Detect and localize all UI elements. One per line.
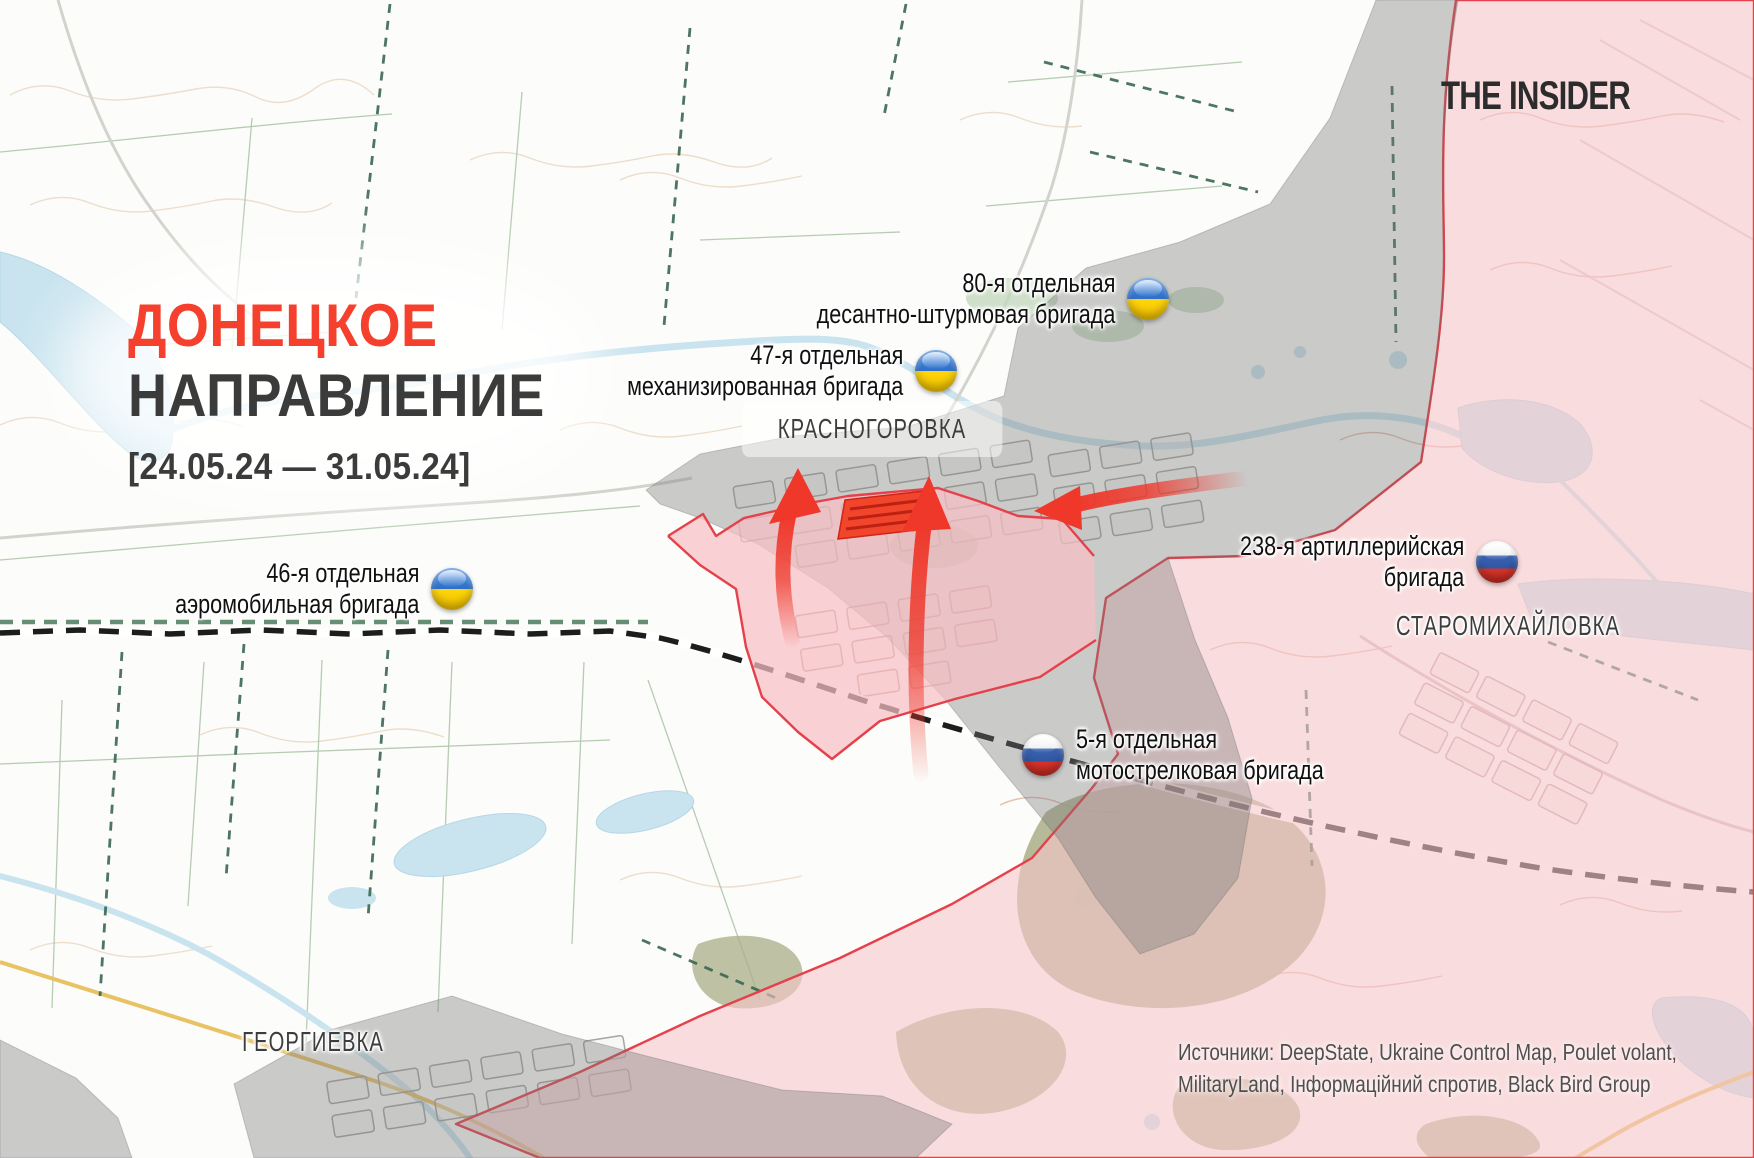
sources-line-1: Источники: DeepState, Ukraine Control Ma…: [1178, 1036, 1677, 1068]
town-label-heorhiivka: ГЕОРГИЕВКА: [242, 1026, 384, 1058]
ukraine-flag-icon: [1127, 278, 1169, 320]
unit-name: 238-я артиллерийская бригада: [1240, 531, 1464, 593]
map-title-block: ДОНЕЦКОЕ НАПРАВЛЕНИЕ [24.05.24 — 31.05.2…: [128, 296, 545, 485]
unit-name: 80-я отдельная десантно-штурмовая бригад…: [816, 268, 1115, 330]
sources-note: Источники: DeepState, Ukraine Control Ma…: [1178, 1036, 1677, 1100]
unit-name: 47-я отдельная механизированная бригада: [627, 340, 903, 402]
title-region: ДОНЕЦКОЕ: [128, 296, 545, 356]
unit-label-80th-air-assault: 80-я отдельная десантно-штурмовая бригад…: [742, 268, 1169, 330]
unit-label-238th-artillery: 238-я артиллерийская бригада: [1184, 531, 1518, 593]
war-map-infographic: ДОНЕЦКОЕ НАПРАВЛЕНИЕ [24.05.24 — 31.05.2…: [0, 0, 1754, 1158]
logo-the-insider: THE INSIDER: [1441, 74, 1630, 119]
unit-label-47th-mechanized: 47-я отдельная механизированная бригада: [558, 340, 957, 402]
russia-flag-icon: [1476, 541, 1518, 583]
unit-name: 46-я отдельная аэромобильная бригада: [175, 558, 419, 620]
sources-line-2: MilitaryLand, Інформаційний спротив, Bla…: [1178, 1068, 1677, 1100]
russia-flag-icon: [1022, 734, 1064, 776]
town-label-staromykhailivka: СТАРОМИХАЙЛОВКА: [1396, 610, 1620, 642]
unit-label-5th-motor-rifle: 5-я отдельная мотострелковая бригада: [1022, 724, 1386, 786]
title-direction: НАПРАВЛЕНИЕ: [128, 366, 545, 426]
title-date-range: [24.05.24 — 31.05.24]: [128, 448, 545, 485]
ukraine-flag-icon: [431, 568, 473, 610]
attack-arrow-up-west: [783, 514, 792, 640]
unit-label-46th-airmobile: 46-я отдельная аэромобильная бригада: [114, 558, 473, 620]
town-label-krasnohorivka: КРАСНОГОРОВКА: [742, 401, 1002, 457]
ukraine-flag-icon: [915, 350, 957, 392]
attack-arrow-up-center: [916, 518, 925, 774]
unit-name: 5-я отдельная мотострелковая бригада: [1076, 724, 1324, 786]
